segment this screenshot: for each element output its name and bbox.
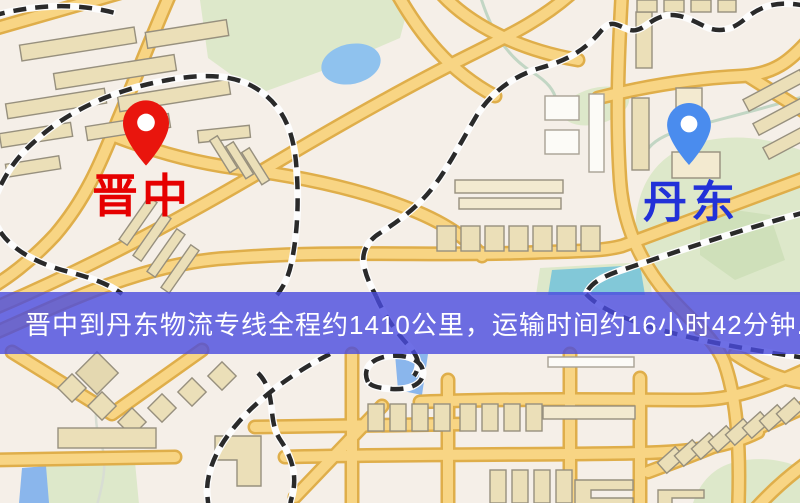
destination-pin-shape bbox=[667, 103, 711, 165]
destination-city-label: 丹东 bbox=[643, 181, 739, 225]
route-info-banner: 晋中到丹东物流专线全程约1410公里，运输时间约16小时42分钟. bbox=[0, 292, 800, 354]
origin-pin-hole bbox=[137, 114, 155, 132]
route-info-text: 晋中到丹东物流专线全程约1410公里，运输时间约16小时42分钟. bbox=[0, 305, 800, 342]
destination-pin-icon[interactable] bbox=[667, 103, 711, 165]
origin-city-label: 晋中 bbox=[92, 173, 192, 219]
origin-pin-icon[interactable] bbox=[123, 100, 169, 166]
base-map bbox=[0, 0, 800, 503]
origin-pin-shape bbox=[123, 100, 169, 165]
map-canvas[interactable]: 晋中 丹东 晋中到丹东物流专线全程约1410公里，运输时间约16小时42分钟. bbox=[0, 0, 800, 503]
destination-pin-hole bbox=[681, 116, 698, 133]
